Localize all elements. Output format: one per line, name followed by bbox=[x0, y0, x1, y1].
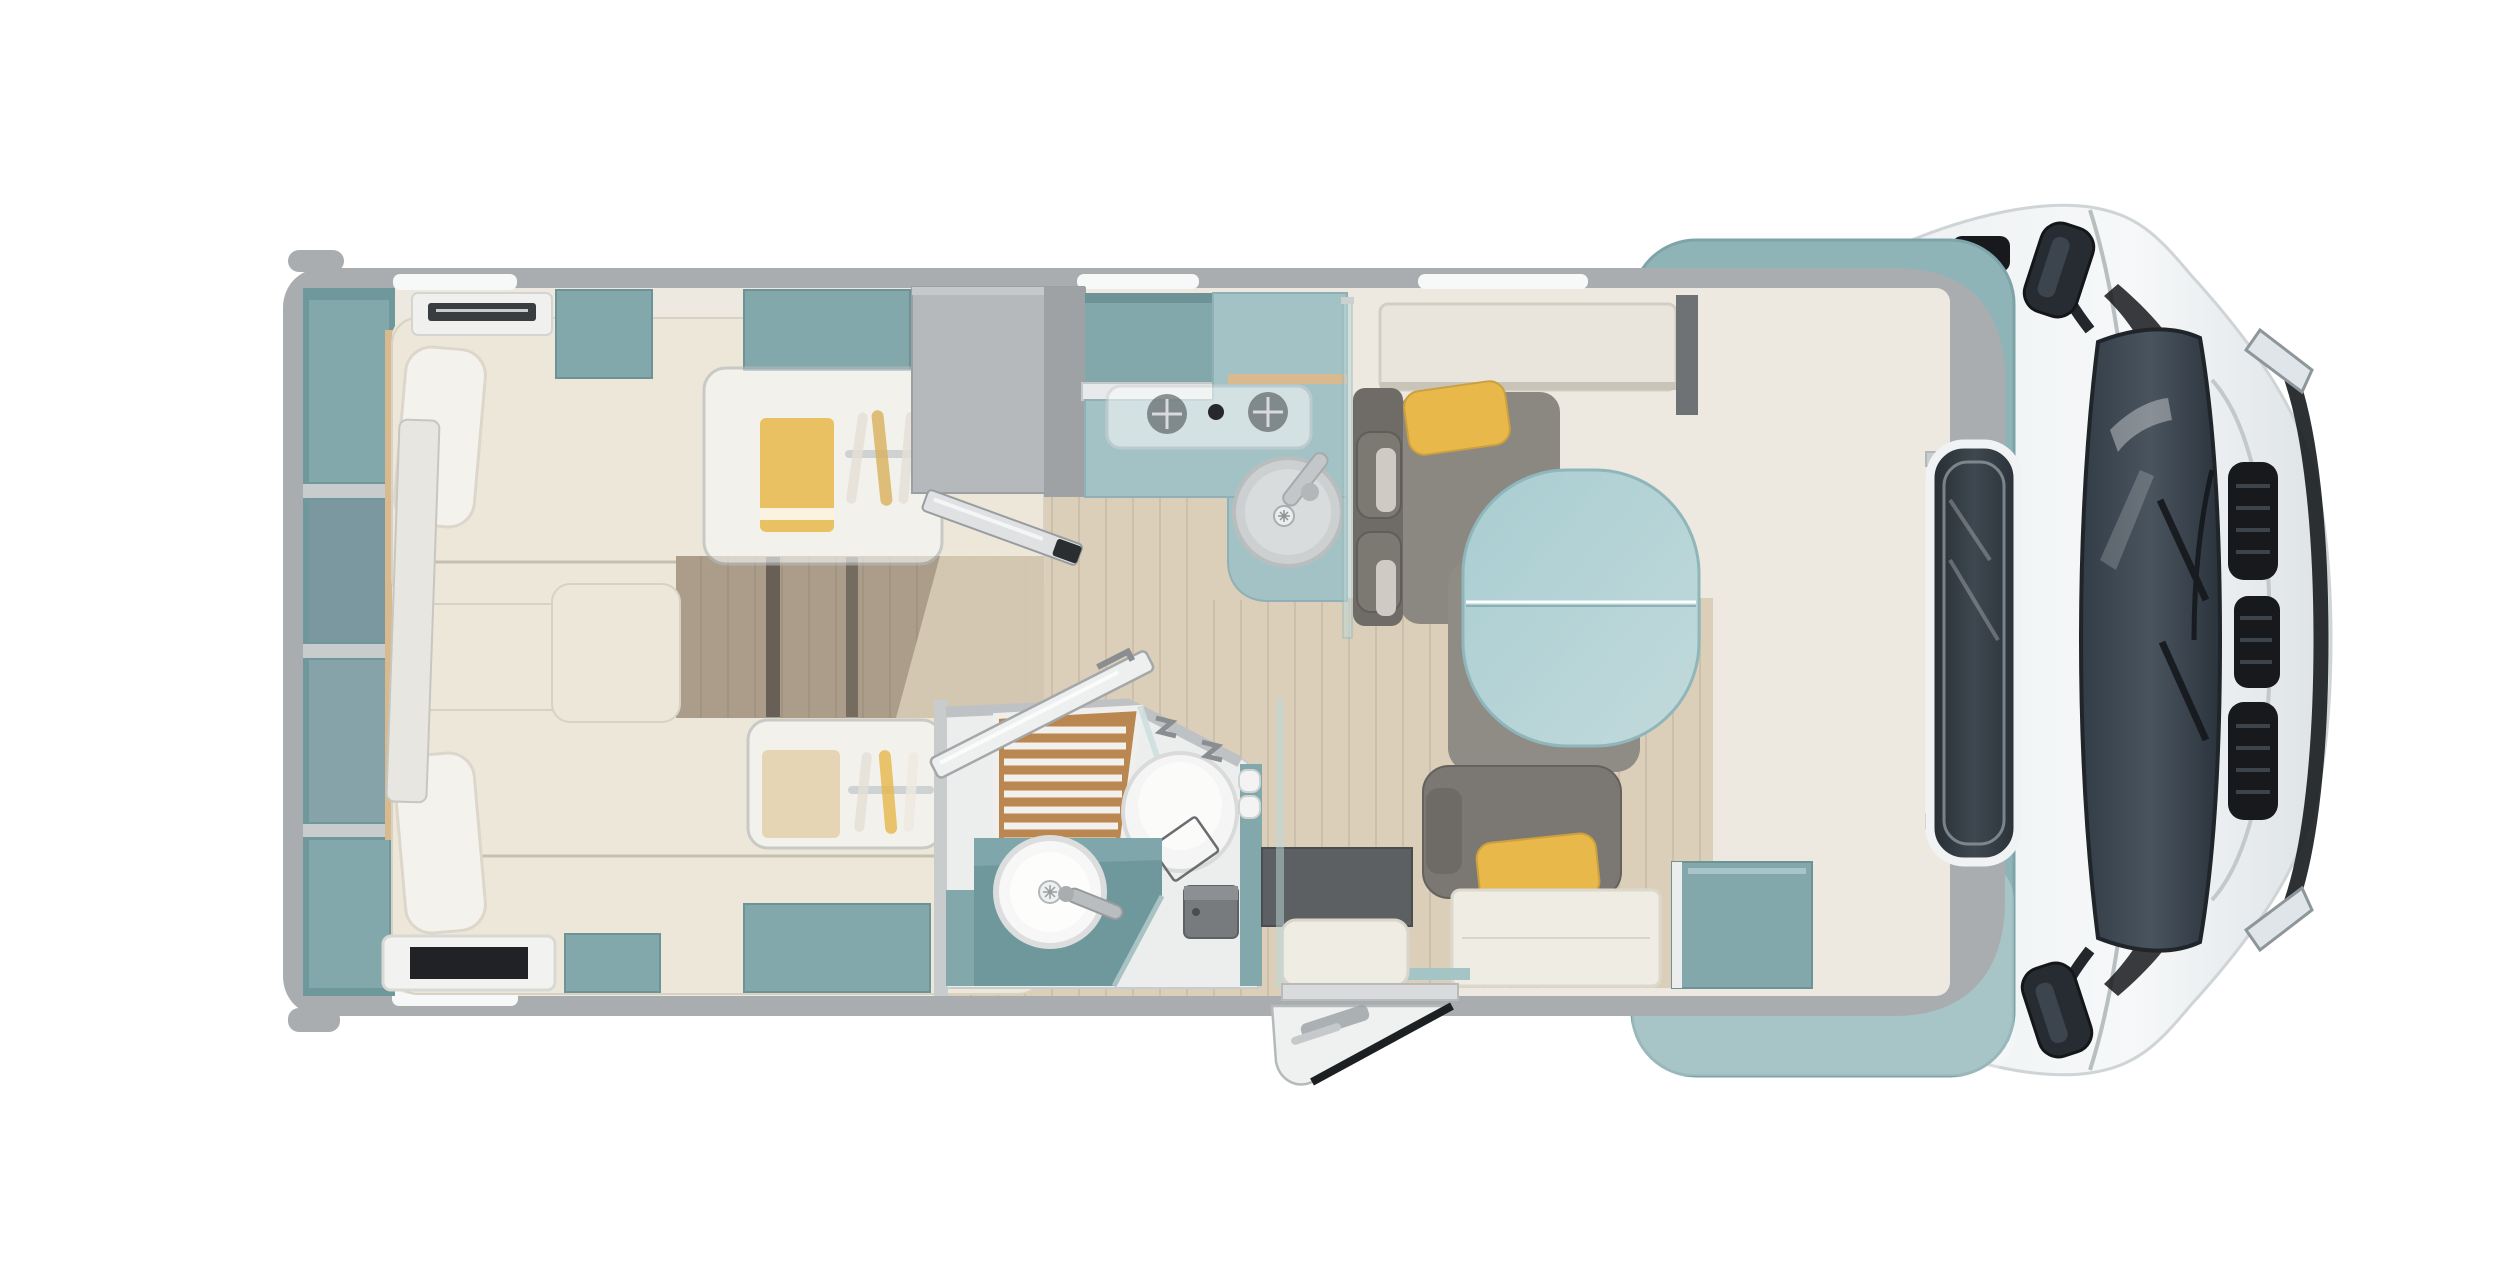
hob bbox=[1107, 386, 1311, 448]
hood-grille bbox=[2228, 462, 2280, 820]
wall-locker-bottom-1 bbox=[565, 934, 660, 992]
water-heater bbox=[1184, 886, 1238, 938]
kitchen-open-locker bbox=[1082, 293, 1216, 400]
step-edge-1 bbox=[766, 557, 780, 717]
wall-locker-top-1 bbox=[556, 290, 652, 378]
hangers-2 bbox=[854, 750, 919, 835]
teal-sideboard bbox=[1672, 862, 1812, 988]
entry-door-sill bbox=[1282, 984, 1458, 1000]
bedroom-step-cushion bbox=[552, 584, 680, 722]
bathroom-left-teal-shelf bbox=[946, 890, 974, 986]
entry-door-open bbox=[1272, 1004, 1452, 1085]
roof-ac-unit bbox=[412, 293, 552, 335]
counter-wood-trim bbox=[1228, 374, 1347, 384]
roof-window-strip-1 bbox=[393, 274, 517, 290]
entry-glass-partition bbox=[1276, 698, 1284, 988]
step-edge-2 bbox=[846, 557, 858, 717]
overhead-locker-top bbox=[704, 368, 942, 564]
entry-step-cushion bbox=[1282, 920, 1408, 986]
bench-yellow-cushion bbox=[1402, 379, 1512, 457]
floorplan-svg bbox=[0, 0, 2500, 1280]
folded-towel-beige bbox=[762, 750, 840, 838]
side-seat-armrest bbox=[1426, 788, 1462, 874]
seatbelt-strap-2 bbox=[1376, 560, 1396, 616]
roof-window-strip-2 bbox=[1077, 274, 1199, 289]
wall-locker-bottom-2 bbox=[744, 904, 930, 992]
overhead-locker-bottom bbox=[748, 720, 942, 848]
rear-shelving bbox=[303, 288, 398, 996]
body-corner-tab-top bbox=[288, 250, 344, 272]
roof-window-strip-3 bbox=[1418, 274, 1588, 289]
hob-knob bbox=[1208, 404, 1224, 420]
shelf-board-2 bbox=[303, 644, 398, 658]
splash-glass bbox=[1343, 300, 1352, 638]
entry-step-well bbox=[1262, 848, 1412, 926]
over-cab-skylight bbox=[1930, 444, 2018, 862]
wall-locker-top-2 bbox=[744, 290, 910, 370]
dinette-table bbox=[1463, 470, 1699, 746]
shelf-board-1 bbox=[303, 484, 398, 498]
shelf-board-3 bbox=[303, 824, 398, 837]
locker-end-gable bbox=[1676, 295, 1698, 415]
bed-skylight bbox=[383, 936, 555, 990]
seatbelt-strap-1 bbox=[1376, 448, 1396, 512]
body-corner-tab-bottom bbox=[288, 1008, 340, 1032]
motorhome-floorplan-scene bbox=[0, 0, 2500, 1280]
kitchen-side-gable bbox=[1044, 287, 1086, 497]
